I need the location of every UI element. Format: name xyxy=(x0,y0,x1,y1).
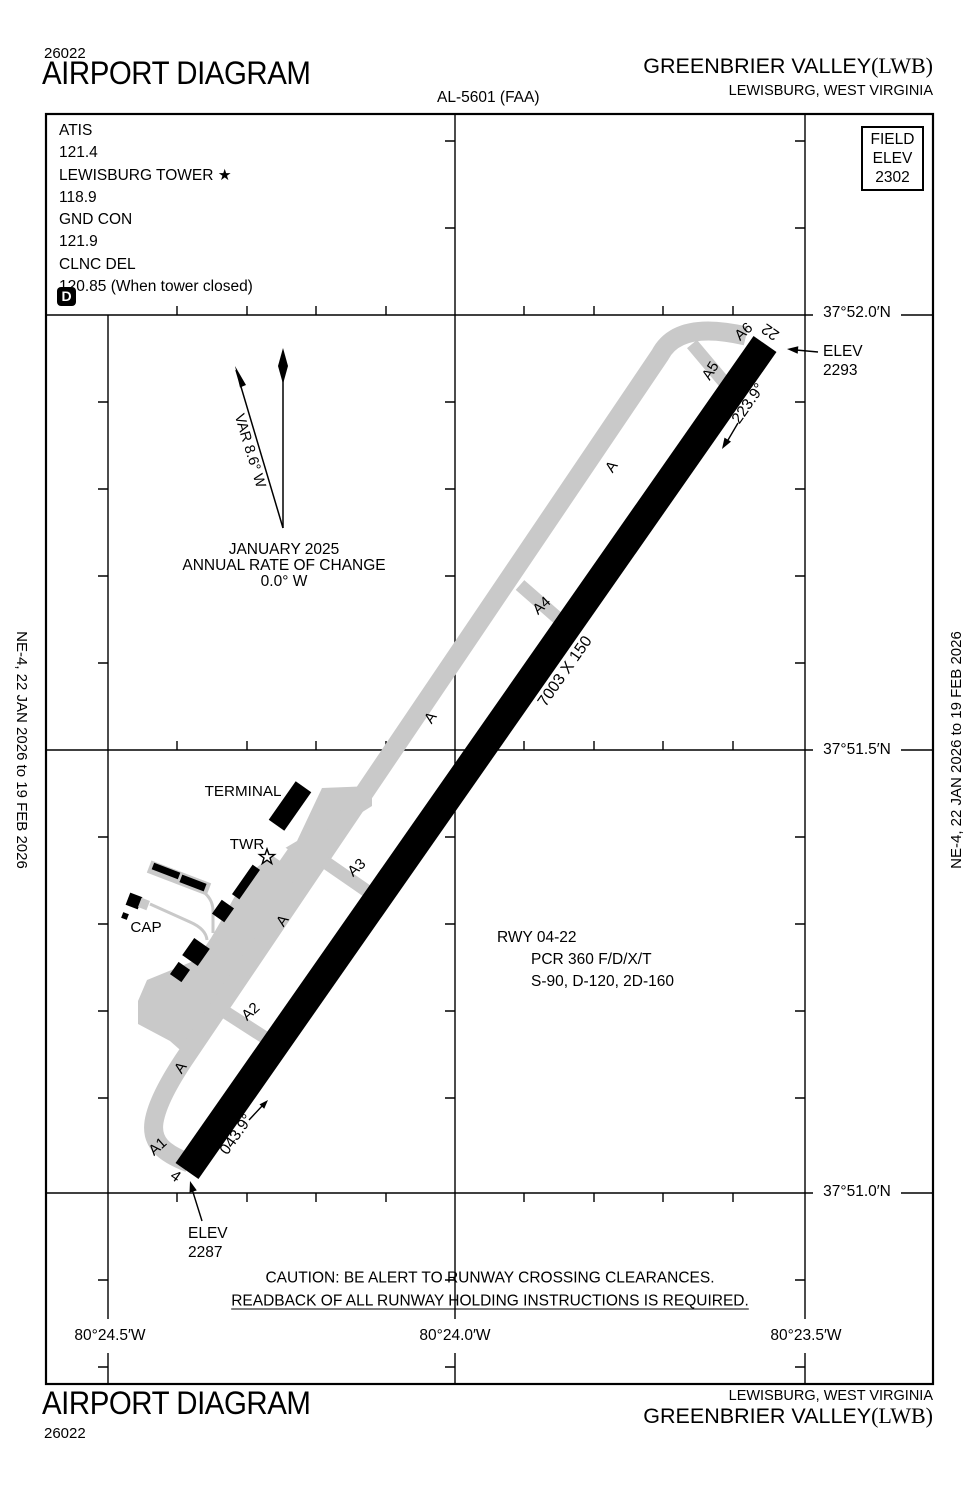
comm-line: GND CON xyxy=(59,209,253,231)
annotation-arrows-group xyxy=(190,346,819,1221)
airport-name: GREENBRIER VALLEY xyxy=(643,54,871,78)
airport-city-footer: LEWISBURG, WEST VIRGINIA xyxy=(729,1389,933,1404)
edge-label-left: NE-4, 22 JAN 2026 to 19 FEB 2026 xyxy=(13,631,29,869)
al-number: AL-5601 (FAA) xyxy=(437,90,540,106)
airport-name-footer: GREENBRIER VALLEY(LWB) xyxy=(643,1404,933,1428)
terminal-label: TERMINAL xyxy=(205,784,282,800)
airport-diagram-page: 26022 AIRPORT DIAGRAM AL-5601 (FAA) GREE… xyxy=(0,0,978,1500)
comm-frequencies: ATIS 121.4 LEWISBURG TOWER ★ 118.9 GND C… xyxy=(59,120,253,298)
footer-title: AIRPORT DIAGRAM xyxy=(42,1387,310,1421)
field-elev-value: 2302 xyxy=(863,168,922,187)
caution-line1: CAUTION: BE ALERT TO RUNWAY CROSSING CLE… xyxy=(231,1268,749,1291)
lat-label: 37°51.0′N xyxy=(819,1184,895,1200)
cap-label: CAP xyxy=(130,920,161,936)
elev-sw-label: ELEV xyxy=(188,1226,228,1242)
airport-name: GREENBRIER VALLEY xyxy=(643,1404,871,1428)
rwy-info-line2: PCR 360 F/D/X/T xyxy=(531,952,652,968)
field-elev-line: FIELD xyxy=(863,130,922,149)
comm-line: ATIS xyxy=(59,120,253,142)
caution-note: CAUTION: BE ALERT TO RUNWAY CROSSING CLE… xyxy=(231,1268,749,1313)
rwy-info-line3: S-90, D-120, 2D-160 xyxy=(531,974,674,990)
edge-label-right: NE-4, 22 JAN 2026 to 19 FEB 2026 xyxy=(949,631,965,869)
datis-icon: D xyxy=(57,287,76,306)
comm-line: 118.9 xyxy=(59,187,253,209)
airport-name-header: GREENBRIER VALLEY(LWB) xyxy=(643,54,933,78)
elev-ne-value: 2293 xyxy=(823,363,857,379)
pavement-group xyxy=(138,331,746,1163)
chart-code-bottom: 26022 xyxy=(44,1426,86,1442)
page-title: AIRPORT DIAGRAM xyxy=(42,57,310,91)
variation-annual: ANNUAL RATE OF CHANGE xyxy=(182,558,385,574)
comm-line: LEWISBURG TOWER ★ xyxy=(59,165,253,187)
cap-building-small xyxy=(121,912,129,920)
elev-sw-arrow xyxy=(192,1189,202,1221)
true-north-arrowhead xyxy=(278,348,288,384)
lon-label: 80°24.0′W xyxy=(415,1328,494,1344)
comm-line: 121.9 xyxy=(59,231,253,253)
elev-ne-arrow xyxy=(796,350,818,352)
airport-id: (LWB) xyxy=(871,53,933,78)
runway-04-22 xyxy=(187,344,765,1171)
field-elev-line: ELEV xyxy=(863,149,922,168)
comm-line: 121.4 xyxy=(59,142,253,164)
magnetic-north-arrowhead xyxy=(235,366,246,388)
airport-city-header: LEWISBURG, WEST VIRGINIA xyxy=(729,84,933,99)
variation-date: JANUARY 2025 xyxy=(229,542,340,558)
airport-id: (LWB) xyxy=(871,1403,933,1428)
caution-line2: READBACK OF ALL RUNWAY HOLDING INSTRUCTI… xyxy=(231,1290,749,1313)
lat-label: 37°52.0′N xyxy=(819,305,895,321)
heading-ne-arrow xyxy=(728,423,738,440)
elev-sw-value: 2287 xyxy=(188,1245,222,1261)
lon-label: 80°23.5′W xyxy=(766,1328,845,1344)
variation-rate: 0.0° W xyxy=(261,574,308,590)
elev-ne-label: ELEV xyxy=(823,344,863,360)
field-elev-box: FIELD ELEV 2302 xyxy=(861,126,924,191)
lat-label: 37°51.5′N xyxy=(819,742,895,758)
lon-label: 80°24.5′W xyxy=(70,1328,149,1344)
tower-label: TWR xyxy=(230,837,265,853)
taxiway-connectors xyxy=(222,344,724,1046)
comm-line: 120.85 (When tower closed) xyxy=(59,276,253,298)
comm-line: CLNC DEL xyxy=(59,254,253,276)
rwy-info-line1: RWY 04-22 xyxy=(497,930,577,946)
